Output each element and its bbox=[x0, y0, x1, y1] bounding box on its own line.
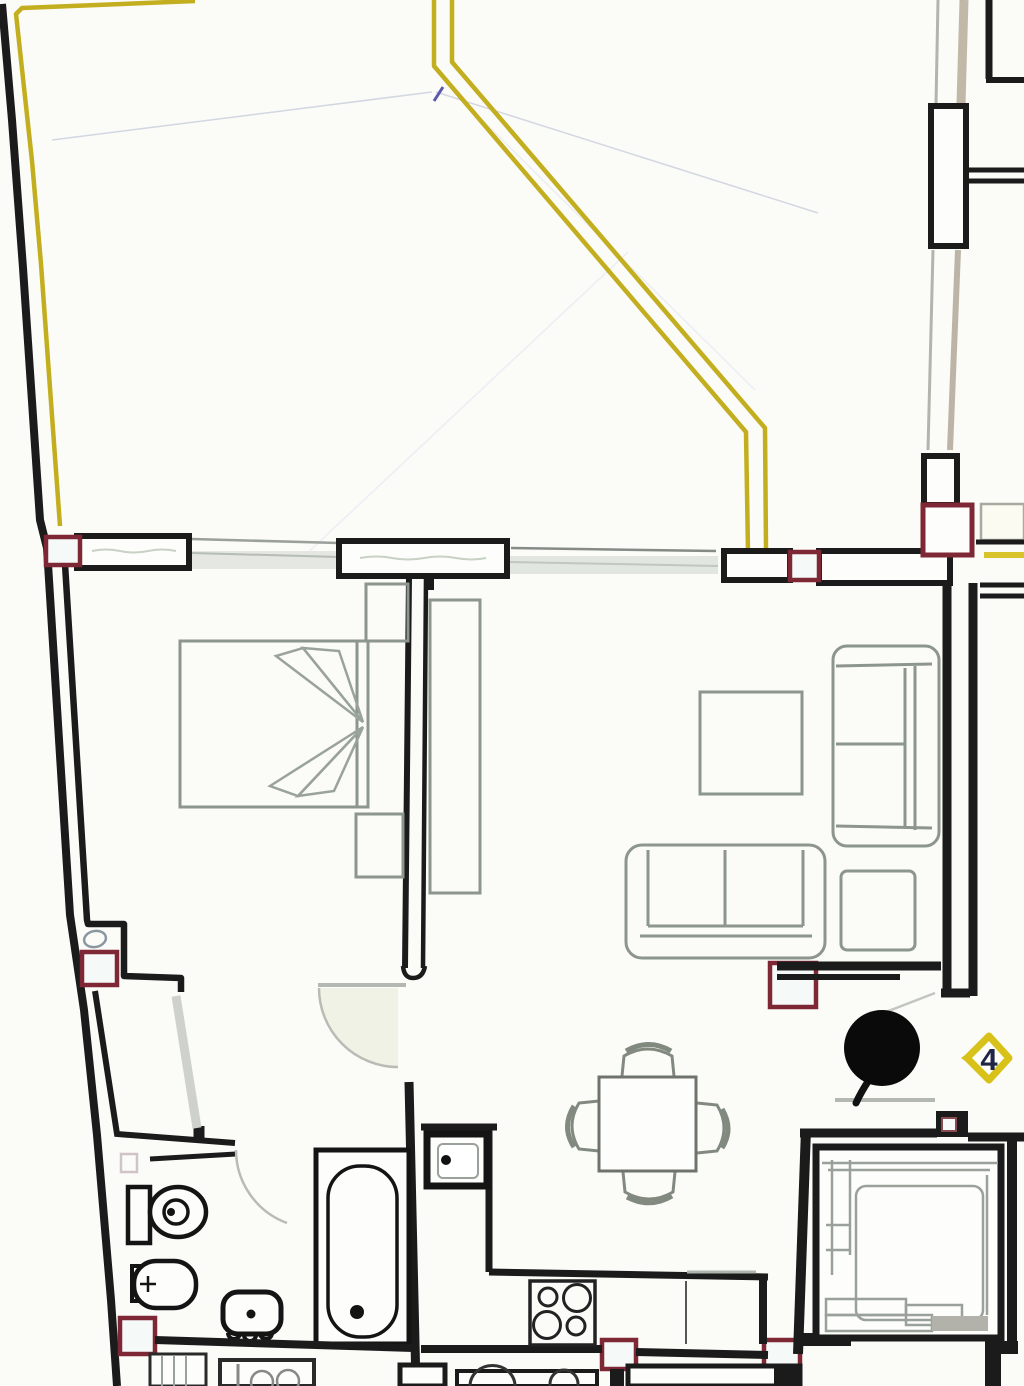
svg-text:4: 4 bbox=[980, 1042, 998, 1077]
